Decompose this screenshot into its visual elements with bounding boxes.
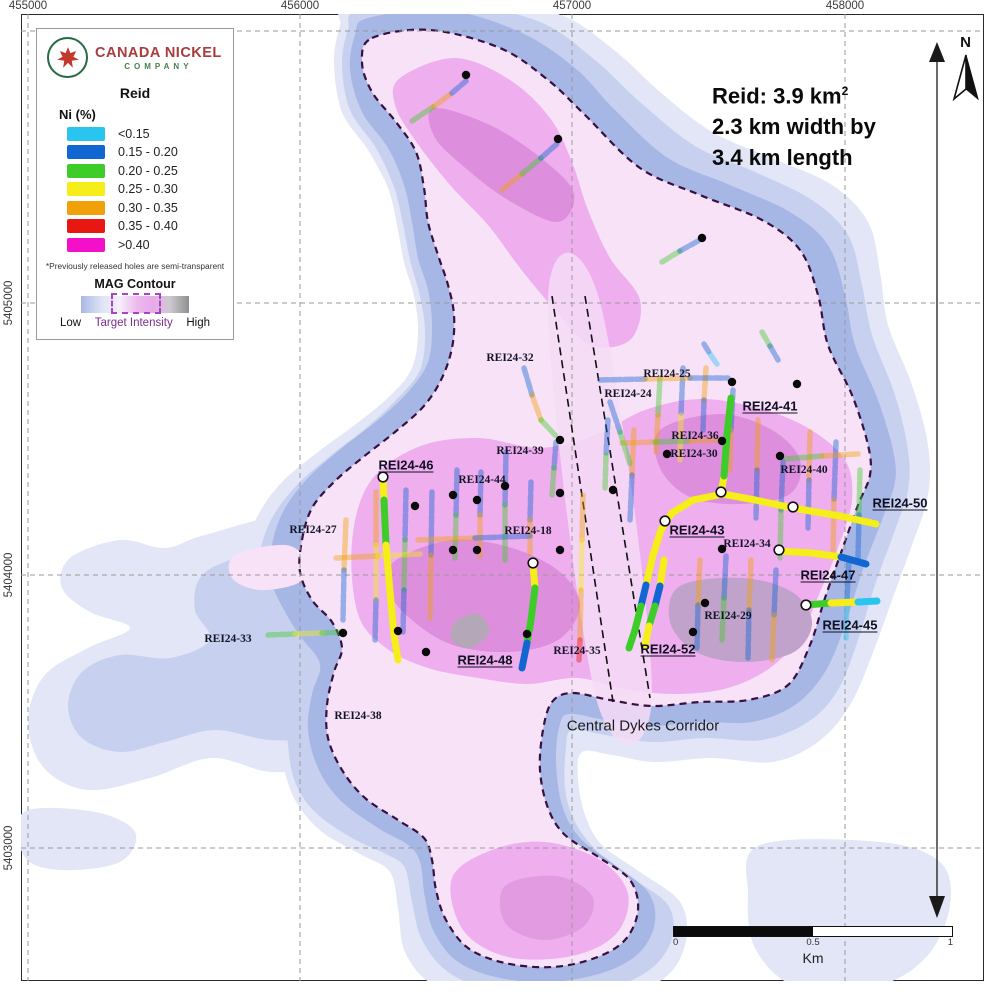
drill-trace-released <box>404 540 405 590</box>
collar-dot <box>793 380 801 388</box>
north-needle-right <box>966 55 978 99</box>
mag-lavender-bottomright <box>746 839 951 991</box>
company-name: CANADA NICKEL <box>95 45 222 61</box>
north-label: N <box>943 34 988 51</box>
drill-trace-released <box>656 415 658 452</box>
ni-swatch <box>67 127 105 141</box>
reid-drill-map-page: { "north_label": "N", "annotation": {"li… <box>0 0 1000 1000</box>
hole-label-REI24-48: REI24-48 <box>458 653 513 668</box>
axis-label-easting: 457000 <box>553 0 591 12</box>
mag-high-label: High <box>186 317 210 329</box>
trace-REI24-46 <box>386 545 390 592</box>
ni-range-label: <0.15 <box>118 127 150 141</box>
ni-class-row: 0.35 - 0.40 <box>67 219 233 233</box>
drill-trace-released <box>552 468 554 495</box>
trace-REI24-52 <box>660 560 664 586</box>
drill-trace-released <box>808 480 809 528</box>
collar-dot <box>718 437 726 445</box>
drill-trace-released <box>622 442 655 443</box>
collar-dot <box>394 627 402 635</box>
trace-REI24-45 <box>831 602 858 603</box>
drill-trace-released <box>343 570 344 620</box>
collar-dot <box>556 489 564 497</box>
hole-label-REI24-30: REI24-30 <box>670 448 717 460</box>
hole-label-REI24-44: REI24-44 <box>458 474 505 486</box>
drill-trace-released <box>600 379 645 380</box>
hole-label-REI24-32: REI24-32 <box>486 352 533 364</box>
drill-trace-released <box>431 492 432 555</box>
area-annotation: Reid: 3.9 km2 2.3 km width by 3.4 km len… <box>712 76 876 173</box>
drill-trace-released <box>632 430 634 475</box>
hole-label-REI24-50: REI24-50 <box>873 496 928 511</box>
drill-trace-released <box>430 555 431 618</box>
hole-label-REI24-52: REI24-52 <box>641 642 696 657</box>
hole-label-REI24-34: REI24-34 <box>723 538 770 550</box>
drill-trace-released <box>698 560 700 605</box>
drill-trace-released <box>606 420 608 455</box>
hole-label-REI24-45: REI24-45 <box>823 618 878 633</box>
ni-range-label: 0.30 - 0.35 <box>118 201 178 215</box>
collar-dot <box>422 648 430 656</box>
trace-REI24-46 <box>394 635 398 660</box>
trace-REI24-47 <box>812 553 841 557</box>
drill-trace-released <box>658 378 660 415</box>
legend-panel: CANADA NICKEL COMPANY Reid Ni (%) <0.150… <box>36 28 234 340</box>
company-logo: CANADA NICKEL COMPANY <box>37 35 233 78</box>
drill-trace-released <box>756 470 757 518</box>
mag-lavender-bottomleft <box>17 808 136 870</box>
drill-trace-released <box>344 520 346 570</box>
ni-range-label: 0.15 - 0.20 <box>118 145 178 159</box>
target-intensity-box <box>111 293 161 314</box>
axis-label-easting: 458000 <box>826 0 864 12</box>
ni-range-label: 0.35 - 0.40 <box>118 219 178 233</box>
hole-label-REI24-25: REI24-25 <box>643 368 690 380</box>
axis-label-easting: 456000 <box>281 0 319 12</box>
ni-swatch <box>67 201 105 215</box>
drill-trace-released <box>772 615 774 660</box>
trace-REI24-48 <box>522 643 527 668</box>
ni-range-label: 0.20 - 0.25 <box>118 164 178 178</box>
drill-trace-released <box>582 495 583 540</box>
hole-label-REI24-35: REI24-35 <box>553 645 600 657</box>
drill-trace-released <box>697 605 698 648</box>
north-needle-left <box>954 55 966 99</box>
drill-trace-released <box>704 368 706 400</box>
ni-class-row: <0.15 <box>67 127 233 141</box>
collar-dot-new <box>788 502 798 512</box>
hole-label-REI24-33: REI24-33 <box>204 633 251 645</box>
hole-label-REI24-24: REI24-24 <box>604 388 651 400</box>
collar-dot-new <box>378 472 388 482</box>
corridor-label: Central Dykes Corridor <box>567 718 720 735</box>
collar-dot <box>473 496 481 504</box>
hole-label-REI24-29: REI24-29 <box>704 610 751 622</box>
collar-dot-new <box>801 600 811 610</box>
collar-dot <box>701 599 709 607</box>
north-arrow: N <box>948 34 988 111</box>
hole-label-REI24-36: REI24-36 <box>671 430 718 442</box>
drill-trace-released <box>554 442 556 468</box>
legend-note: *Previously released holes are semi-tran… <box>37 261 233 271</box>
drill-trace-released <box>580 590 581 640</box>
hole-label-REI24-27: REI24-27 <box>289 524 336 536</box>
drill-trace-released <box>605 455 606 490</box>
ni-class-row: 0.15 - 0.20 <box>67 145 233 159</box>
drill-trace-released <box>405 490 406 540</box>
drill-trace-released <box>774 570 776 615</box>
hole-label-REI24-39: REI24-39 <box>496 445 543 457</box>
drill-trace-released <box>418 538 475 540</box>
axis-label-northing: 5404000 <box>3 553 15 598</box>
drill-trace-released <box>724 556 726 598</box>
trace-REI24-46 <box>390 592 394 635</box>
hole-label-REI24-40: REI24-40 <box>780 464 827 476</box>
axis-label-northing: 5405000 <box>3 281 15 326</box>
drill-trace-released <box>833 500 834 558</box>
collar-dot <box>554 135 562 143</box>
drill-trace-released <box>268 634 295 635</box>
ni-swatch <box>67 145 105 159</box>
drill-trace-released <box>530 482 531 520</box>
collar-dot <box>523 630 531 638</box>
drill-trace-released <box>403 590 404 632</box>
ni-class-row: 0.30 - 0.35 <box>67 201 233 215</box>
ni-swatch <box>67 219 105 233</box>
ni-swatch <box>67 238 105 252</box>
collar-dot <box>556 546 564 554</box>
scale-tick-1: 1 <box>948 937 953 948</box>
drill-trace-released <box>703 400 704 430</box>
ni-class-row: 0.25 - 0.30 <box>67 182 233 196</box>
collar-dot-new <box>716 487 726 497</box>
company-subtitle: COMPANY <box>124 62 192 71</box>
hole-label-REI24-43: REI24-43 <box>670 523 725 538</box>
legend-title: Reid <box>37 85 233 101</box>
ni-range-label: 0.25 - 0.30 <box>118 182 178 196</box>
collar-dot <box>339 629 347 637</box>
ni-class-rows: <0.150.15 - 0.200.20 - 0.250.25 - 0.300.… <box>37 127 233 252</box>
drill-trace-released <box>859 470 860 515</box>
drill-trace-released <box>375 600 376 640</box>
ni-swatch <box>67 182 105 196</box>
collar-dot <box>776 452 784 460</box>
hole-label-REI24-41: REI24-41 <box>743 399 798 414</box>
drill-trace-released <box>757 420 758 470</box>
hole-label-REI24-18: REI24-18 <box>504 525 551 537</box>
axis-label-easting: 455000 <box>9 0 47 12</box>
drill-trace-released <box>581 540 582 590</box>
hole-label-REI24-38: REI24-38 <box>334 710 381 722</box>
collar-dot <box>449 491 457 499</box>
mag-target-label: Target Intensity <box>95 317 173 329</box>
ni-swatch <box>67 164 105 178</box>
mag-low-label: Low <box>60 317 81 329</box>
collar-dot <box>609 486 617 494</box>
ni-class-row: 0.20 - 0.25 <box>67 164 233 178</box>
drill-trace-released <box>822 454 858 456</box>
collar-dot-new <box>528 558 538 568</box>
scale-tick-05: 0.5 <box>806 937 819 948</box>
trace-REI24-45 <box>858 601 877 602</box>
collar-dot <box>449 546 457 554</box>
collar-dot <box>698 234 706 242</box>
drill-trace-released <box>295 633 322 634</box>
ni-range-label: >0.40 <box>118 238 150 252</box>
collar-dot <box>728 378 736 386</box>
collar-dot <box>411 502 419 510</box>
collar-dot-new <box>660 516 670 526</box>
drill-trace-released <box>749 560 751 610</box>
axis-label-northing: 5403000 <box>3 826 15 871</box>
trace-REI24-48 <box>531 588 535 620</box>
collar-dot <box>689 628 697 636</box>
drill-trace-released <box>786 456 822 459</box>
scale-tick-0: 0 <box>673 937 678 948</box>
mag-contour-title: MAG Contour <box>37 277 233 291</box>
drill-trace-released <box>834 442 836 500</box>
hole-label-REI24-46: REI24-46 <box>379 458 434 473</box>
scale-bar: 0 0.5 1 Km <box>673 926 953 966</box>
trace-REI24-46 <box>384 500 386 545</box>
maple-leaf-logo-icon <box>47 37 88 78</box>
collar-dot <box>473 546 481 554</box>
ni-percent-label: Ni (%) <box>59 107 233 122</box>
hole-label-REI24-47: REI24-47 <box>801 568 856 583</box>
collar-dot <box>556 436 564 444</box>
trace-REI24-41 <box>727 398 731 435</box>
mag-gradient-bar <box>81 296 189 313</box>
collar-dot-new <box>774 545 784 555</box>
drill-trace-released <box>630 475 632 520</box>
collar-dot <box>462 71 470 79</box>
ni-class-row: >0.40 <box>67 238 233 252</box>
scale-unit: Km <box>673 950 953 966</box>
